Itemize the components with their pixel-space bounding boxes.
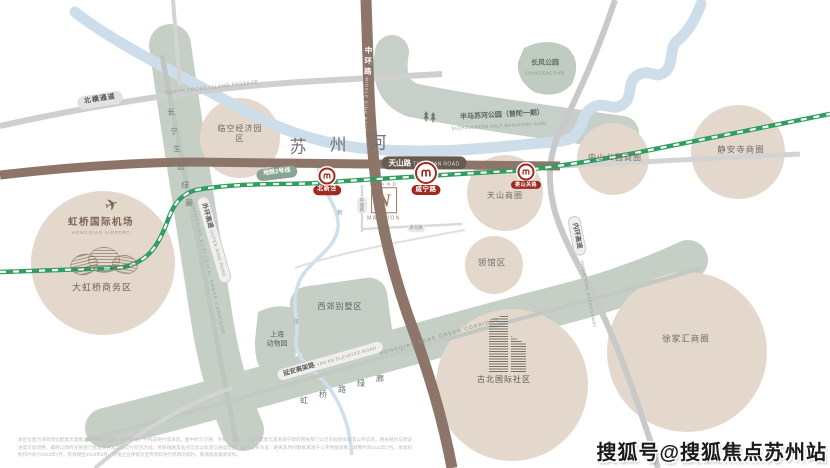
metro-logo-icon	[518, 164, 535, 181]
logo-mansion-text: MANSION	[367, 215, 401, 221]
pingtang-road-label: 平塘路	[357, 197, 367, 213]
metro-logo-icon	[415, 162, 437, 184]
terminal-wing-right	[111, 253, 140, 276]
hongqiao-corridor-char: 虹	[300, 396, 308, 406]
xujiahui-biz-label: 徐家汇商圈	[662, 334, 710, 345]
xujiahui-circle	[607, 272, 767, 432]
zoo-label-line2: 动物园	[267, 340, 288, 349]
sohu-watermark: 搜狐号@搜狐焦点苏州站	[596, 436, 827, 465]
middle-ring-road-label: 中环路	[363, 46, 373, 78]
gubei-tower-right	[511, 336, 526, 372]
gubei-tower-left	[489, 314, 508, 372]
hongqiao-airport-label: 虹桥国际机场	[68, 217, 134, 229]
hongqiao-corridor-char: 绿	[357, 379, 365, 389]
creek-char: 泾	[293, 320, 299, 327]
changning-corridor-char: 绿	[181, 180, 189, 189]
changning-corridor-char: 生	[173, 144, 181, 153]
project-logo: GRAND N MANSION	[367, 181, 401, 221]
suzhou-river-char: 苏	[290, 136, 307, 157]
linkong-area-label: 临空经济园区	[214, 124, 266, 144]
zoo-label-line1: 上海	[267, 331, 288, 340]
changfeng-park-label: 长风公园	[531, 60, 559, 69]
changfeng-park-label-en: CHANGFENG PARK	[525, 70, 565, 75]
logo-grand-text: GRAND	[367, 181, 401, 186]
suzhou-river-char: 河	[370, 132, 387, 153]
airport-terminal-sketch	[70, 245, 136, 279]
creek-char: 新	[337, 211, 343, 218]
hongqiao-corridor-char: 路	[338, 385, 346, 395]
metro-logo-icon	[319, 168, 336, 185]
hongqiao-corridor-char: 廊	[376, 374, 384, 384]
tianshan-biz-label: 天山商圈	[487, 191, 523, 201]
hongqiao-airport-label-en: HONGQIAO AIRPORT	[72, 230, 130, 236]
trees-icon	[422, 109, 438, 131]
station-label-beixinjing: 北新泾	[313, 185, 341, 195]
maotai-road-label: 茅台路	[407, 224, 425, 232]
xijiao-villa-label: 西郊别墅区	[318, 302, 363, 312]
gubei-community-label: 古北国际社区	[477, 375, 531, 385]
zhongshan-park-biz-label: 中山公园商圈	[588, 153, 642, 163]
changning-corridor-char: 长	[167, 107, 175, 116]
suzhou-river-char: 州	[330, 134, 347, 155]
tianshan-road-cn: 天山路	[389, 158, 412, 167]
hongqiao-corridor-char: 桥	[319, 390, 327, 400]
station-label-loushanguan-road: 娄山关路	[511, 181, 541, 189]
disclaimer-text: 本区位图为项目周边配套示意图，非精确测绘图，仅供参考，不构成要约或承诺。图中所示…	[18, 436, 412, 459]
lingguan-area-label: 领馆区	[478, 258, 507, 269]
changning-corridor-char: 态	[177, 162, 185, 171]
changning-corridor-char: 宁	[170, 126, 178, 135]
station-label-weining-road: 威宁路	[412, 185, 441, 195]
jingan-temple-biz-label: 静安寺商圈	[717, 145, 765, 156]
shanghai-zoo-label: 上海 动物园	[267, 331, 288, 349]
dahongqiao-biz-label: 大虹桥商务区	[72, 282, 132, 293]
gubei-building-sketch	[487, 310, 533, 372]
logo-n-monogram: N	[371, 187, 397, 213]
location-map: 北横通道 NORTH CROSS ISLAND PASSAGE 长 宁 生 态 …	[0, 0, 830, 468]
